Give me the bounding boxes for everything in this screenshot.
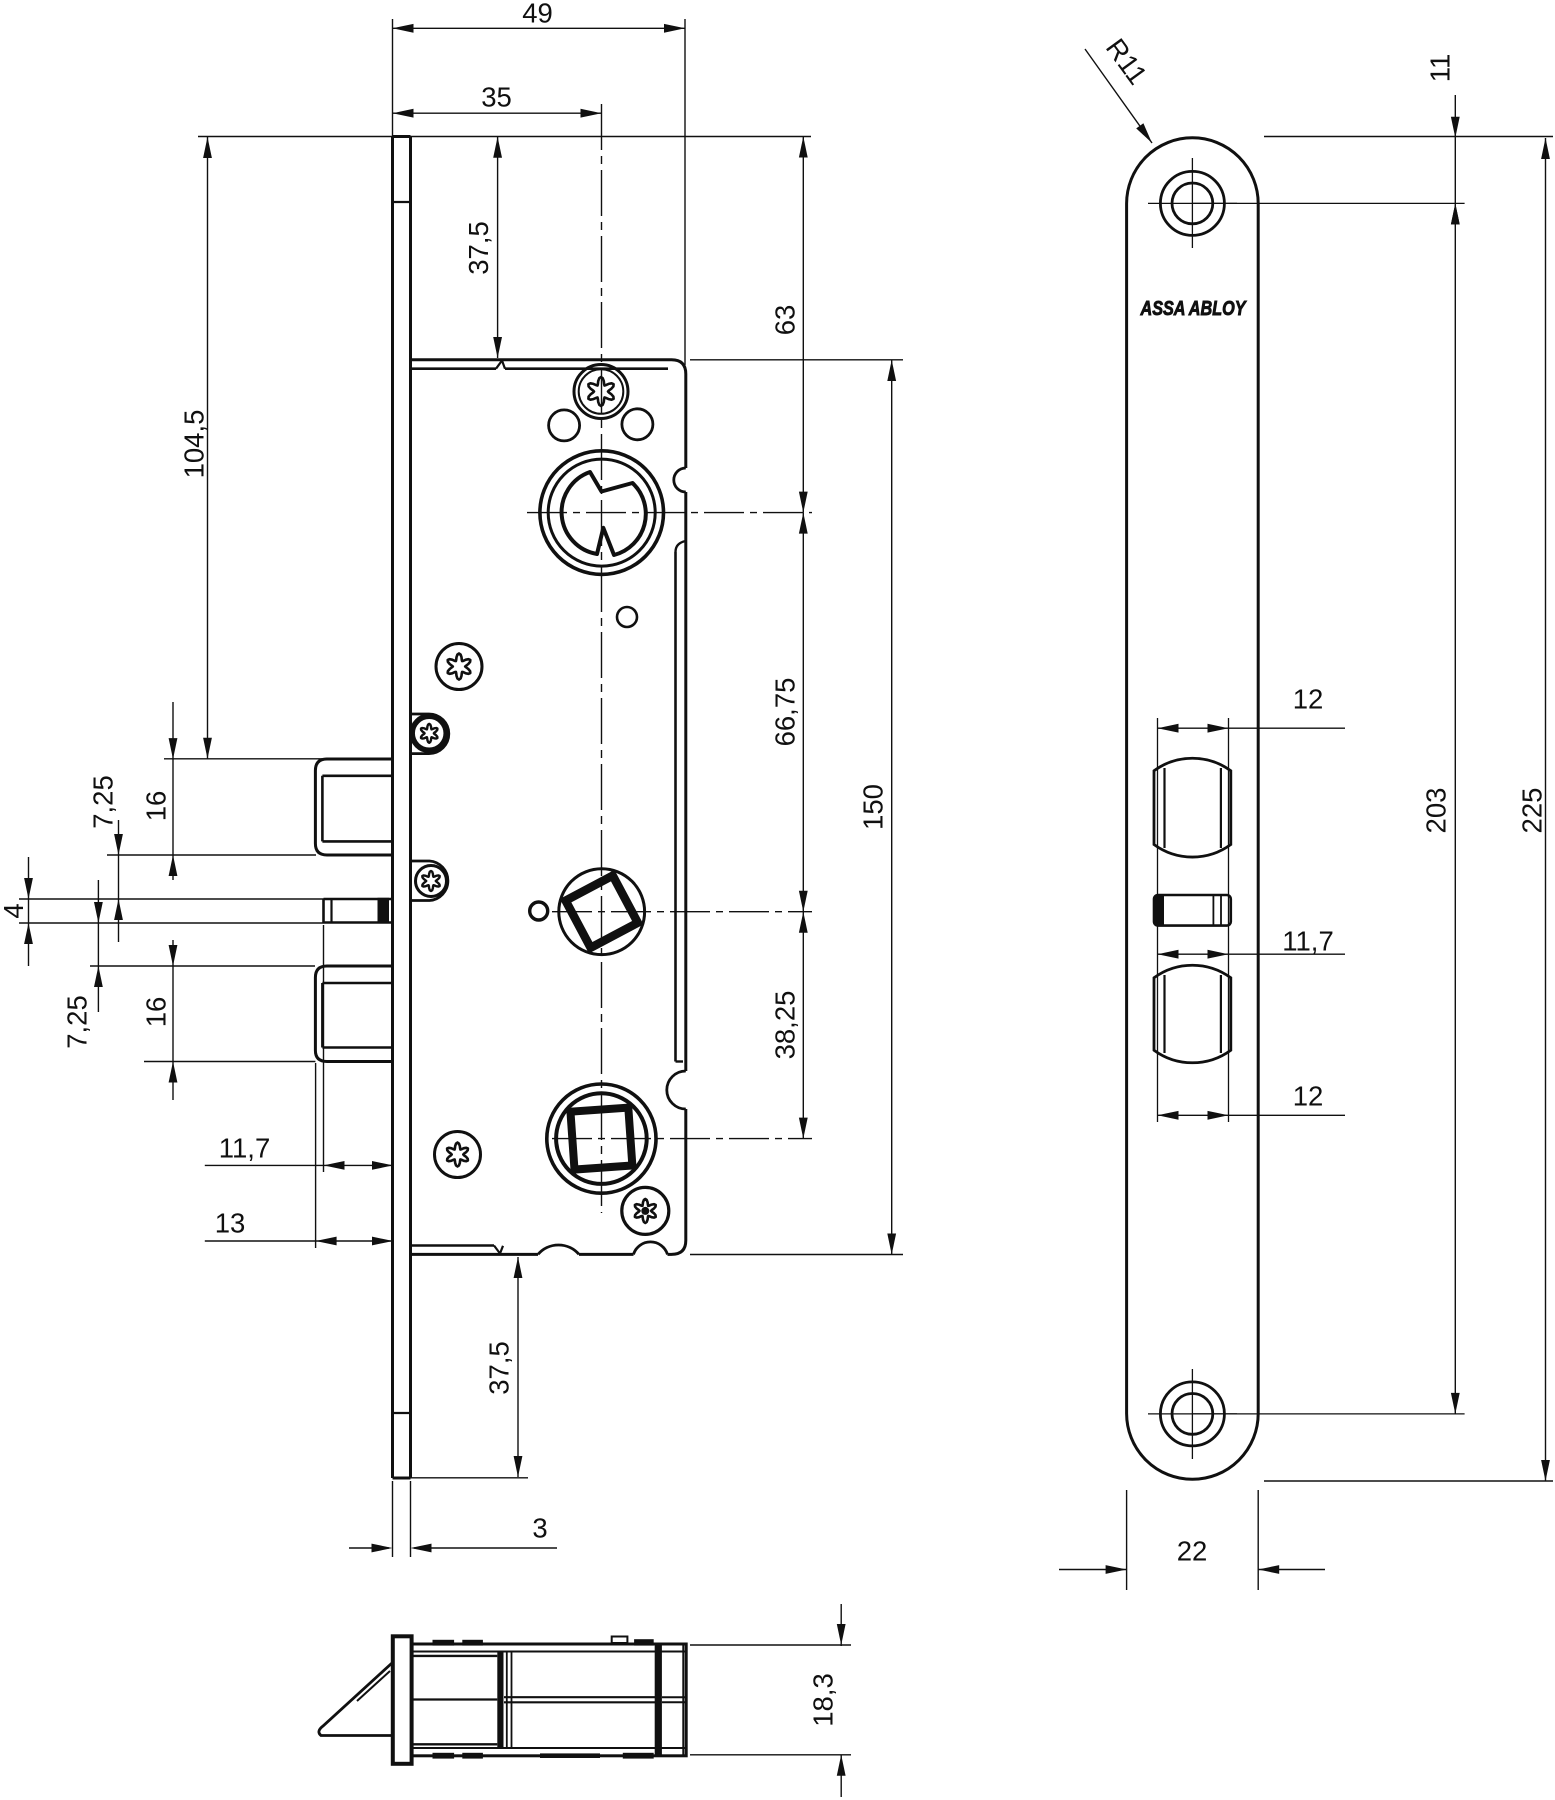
- svg-text:37,5: 37,5: [463, 221, 494, 275]
- svg-text:225: 225: [1517, 788, 1548, 834]
- svg-text:38,25: 38,25: [770, 991, 801, 1060]
- svg-text:ASSA ABLOY: ASSA ABLOY: [1140, 298, 1247, 320]
- svg-text:35: 35: [481, 82, 512, 113]
- svg-text:63: 63: [770, 305, 801, 336]
- svg-text:11,7: 11,7: [1282, 926, 1333, 957]
- svg-text:16: 16: [141, 791, 172, 822]
- svg-text:22: 22: [1177, 1536, 1208, 1567]
- svg-text:203: 203: [1421, 788, 1452, 834]
- svg-text:13: 13: [215, 1208, 246, 1239]
- svg-text:3: 3: [532, 1513, 547, 1544]
- svg-text:49: 49: [522, 0, 553, 29]
- svg-text:4: 4: [0, 903, 29, 918]
- svg-text:66,75: 66,75: [770, 678, 801, 747]
- svg-text:16: 16: [141, 997, 172, 1028]
- svg-text:11: 11: [1425, 54, 1456, 83]
- svg-text:18,3: 18,3: [808, 1673, 839, 1727]
- svg-text:150: 150: [858, 784, 889, 830]
- svg-text:104,5: 104,5: [179, 410, 210, 479]
- svg-text:11,7: 11,7: [219, 1133, 270, 1164]
- svg-text:7,25: 7,25: [88, 775, 119, 829]
- svg-text:12: 12: [1293, 1081, 1324, 1112]
- svg-text:12: 12: [1293, 684, 1324, 715]
- svg-text:7,25: 7,25: [62, 995, 93, 1049]
- svg-text:37,5: 37,5: [484, 1341, 515, 1395]
